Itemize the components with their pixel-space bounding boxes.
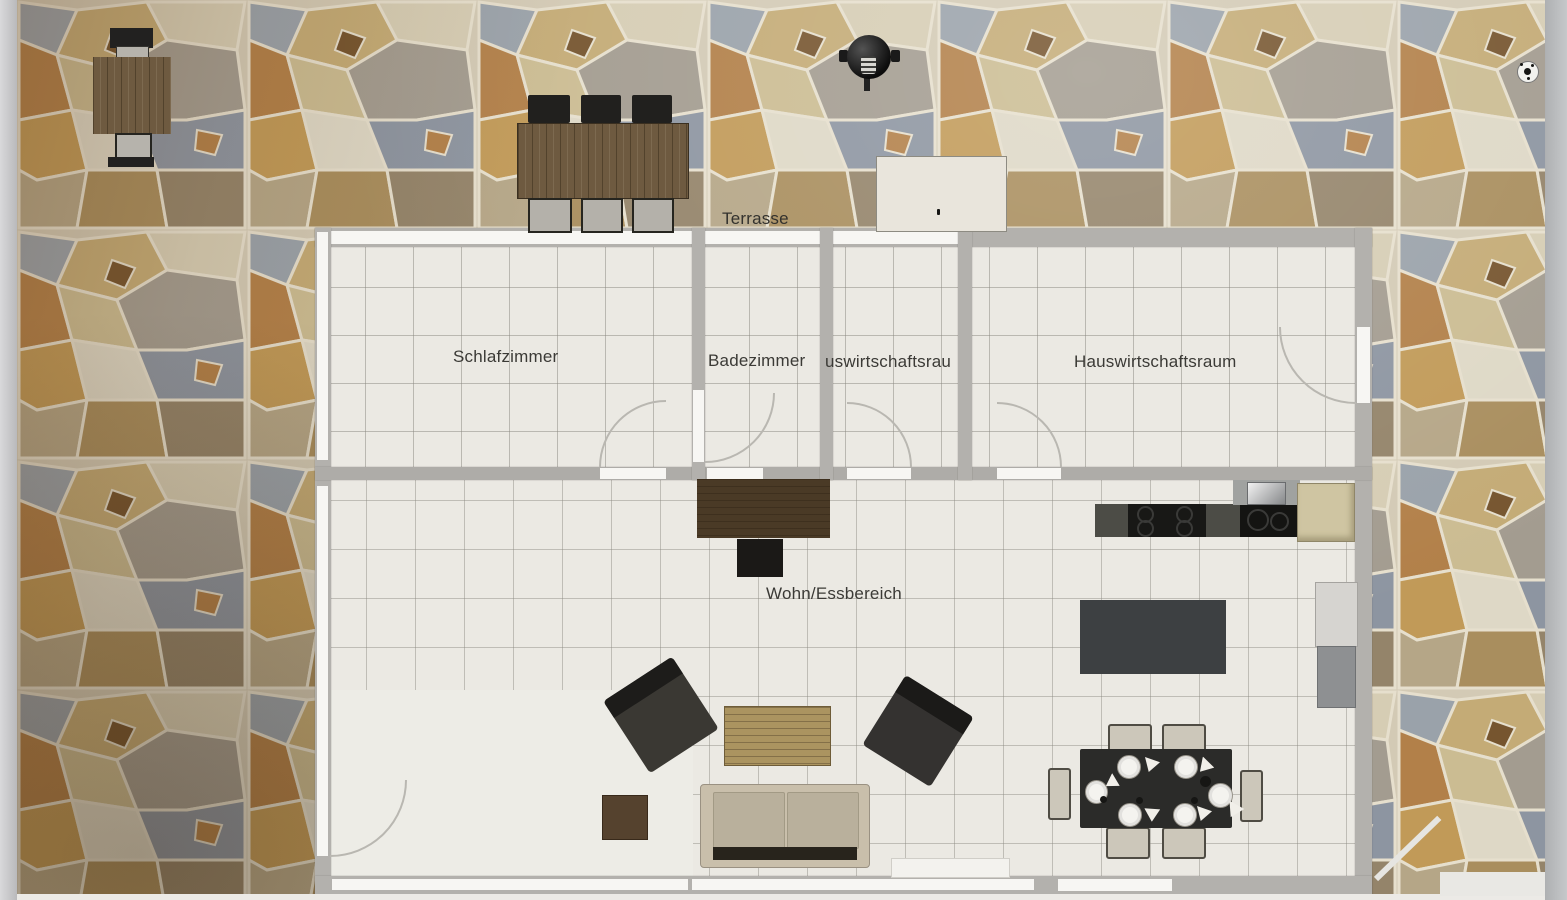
photo-edge-left — [0, 0, 17, 900]
doormat[interactable] — [891, 858, 1010, 878]
dining-chair-bottom-1[interactable] — [1106, 827, 1150, 859]
soccer-ball-pentagon — [1524, 68, 1531, 75]
patio-table[interactable] — [93, 57, 171, 134]
washer[interactable] — [1315, 582, 1358, 647]
table-item — [1100, 796, 1107, 803]
soccer-ball-patch-2 — [1531, 64, 1534, 67]
rug[interactable] — [1080, 600, 1226, 674]
dining-chair-left[interactable] — [1048, 768, 1071, 820]
dining-chair-right[interactable] — [1240, 770, 1263, 822]
dryer[interactable] — [1317, 646, 1356, 708]
outdoor-chair-top-2[interactable] — [581, 95, 621, 123]
side-table[interactable] — [602, 795, 648, 840]
burner-icon — [1137, 520, 1154, 537]
soccer-ball-patch-3 — [1527, 77, 1530, 80]
grill-leg — [864, 78, 870, 91]
table-item — [1136, 797, 1143, 804]
label-badezimmer: Badezimmer — [708, 350, 805, 371]
door-opening-bath-left — [693, 390, 704, 462]
door-opening-utility-large — [997, 468, 1061, 479]
storage-box-latch — [937, 209, 940, 215]
sofa-cushion-left — [713, 792, 785, 849]
table-item — [1200, 776, 1211, 787]
door-opening-bedroom — [600, 468, 666, 479]
interior-wall-horizontal — [315, 467, 1372, 480]
photo-bottom-strip — [17, 894, 1545, 900]
plate — [1174, 755, 1198, 779]
window-left-1 — [317, 232, 328, 460]
plate — [1173, 803, 1197, 827]
window-bottom-1 — [332, 879, 688, 890]
window-top-3 — [833, 231, 958, 244]
interior-wall-utility-utility — [958, 228, 972, 480]
window-bottom-3 — [1058, 879, 1172, 891]
dining-chair-bottom-2[interactable] — [1162, 827, 1206, 859]
outdoor-dining-table[interactable] — [517, 123, 689, 199]
sideboard[interactable] — [697, 479, 830, 538]
plate — [1117, 755, 1141, 779]
label-terrasse: Terrasse — [722, 208, 789, 229]
outdoor-chair-top-3[interactable] — [632, 95, 672, 123]
floor-plan-screenshot: Terrasse Schlafzimmer Badezimmer uswirts… — [0, 0, 1567, 900]
label-hauswirtschaftsraum-klein: uswirtschaftsrau — [825, 351, 959, 372]
burner-icon — [1176, 520, 1193, 537]
window-top-2 — [705, 231, 820, 244]
burner-icon — [1270, 512, 1289, 531]
window-bottom-2 — [692, 879, 1034, 890]
table-item — [1191, 797, 1198, 804]
fridge-cabinet[interactable] — [1297, 483, 1355, 542]
label-schlafzimmer: Schlafzimmer — [453, 346, 558, 367]
window-left-2 — [317, 486, 328, 856]
photo-edge-right — [1545, 0, 1567, 900]
outdoor-chair-top-1[interactable] — [528, 95, 570, 123]
door-opening-utility-small — [847, 468, 911, 479]
patio-chair-back-bottom[interactable] — [108, 157, 154, 167]
sofa-cushion-right — [787, 792, 859, 849]
door-opening-bath-bottom — [707, 468, 763, 479]
outdoor-chair-bottom-2[interactable] — [581, 198, 623, 233]
storage-box[interactable] — [876, 156, 1007, 232]
patio-chair-back-top[interactable] — [110, 28, 153, 48]
sofa[interactable] — [700, 784, 870, 868]
tv[interactable] — [737, 539, 783, 577]
terrace-edge-bottom-right — [1440, 872, 1545, 896]
grill-logo — [861, 56, 876, 74]
outdoor-chair-bottom-1[interactable] — [528, 198, 572, 233]
door-opening-right — [1357, 327, 1370, 403]
burner-icon — [1247, 509, 1269, 531]
coffee-table[interactable] — [724, 706, 831, 766]
label-hauswirtschaftsraum: Hauswirtschaftsraum — [1074, 351, 1237, 372]
sofa-shadow — [713, 847, 857, 860]
soccer-ball-patch-1 — [1520, 63, 1523, 66]
plate — [1208, 783, 1233, 808]
grill-handle-right — [891, 50, 900, 62]
plate — [1118, 803, 1142, 827]
outdoor-chair-bottom-3[interactable] — [632, 198, 674, 233]
sink-basin — [1247, 482, 1286, 505]
label-wohn-essbereich: Wohn/Essbereich — [766, 583, 902, 604]
